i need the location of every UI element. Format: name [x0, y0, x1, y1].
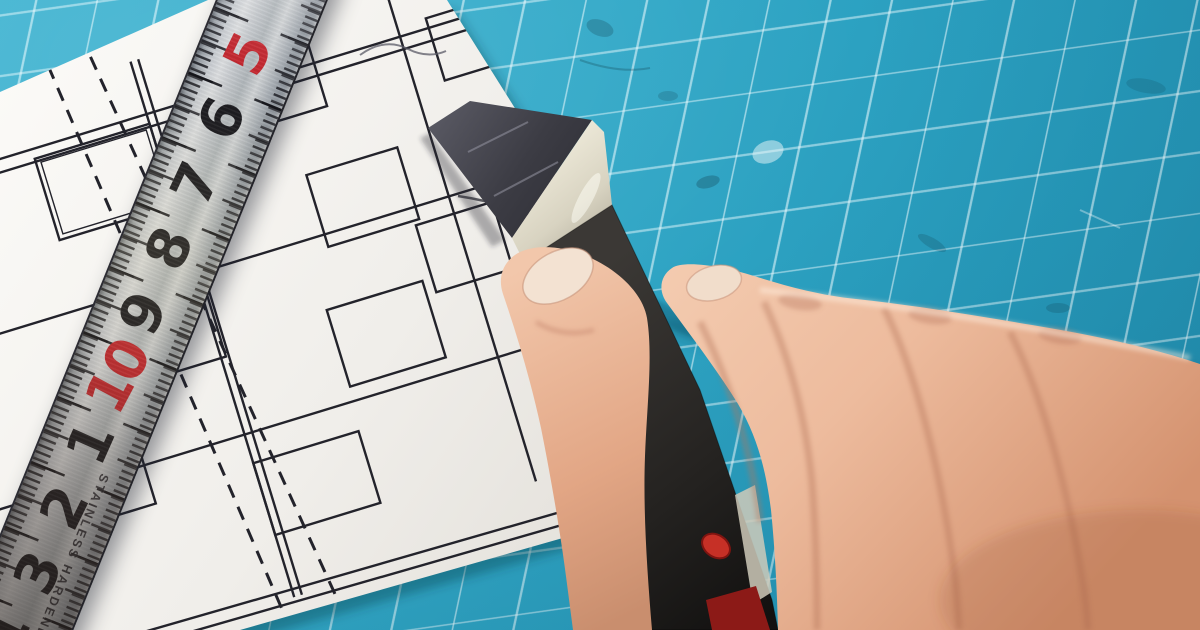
thumb-finger — [501, 247, 652, 630]
photo-craft-cutting-scene: 螺旋階段 56789101234 STAINLESS HARDENED — [0, 0, 1200, 630]
knife-and-hand — [0, 0, 1200, 630]
